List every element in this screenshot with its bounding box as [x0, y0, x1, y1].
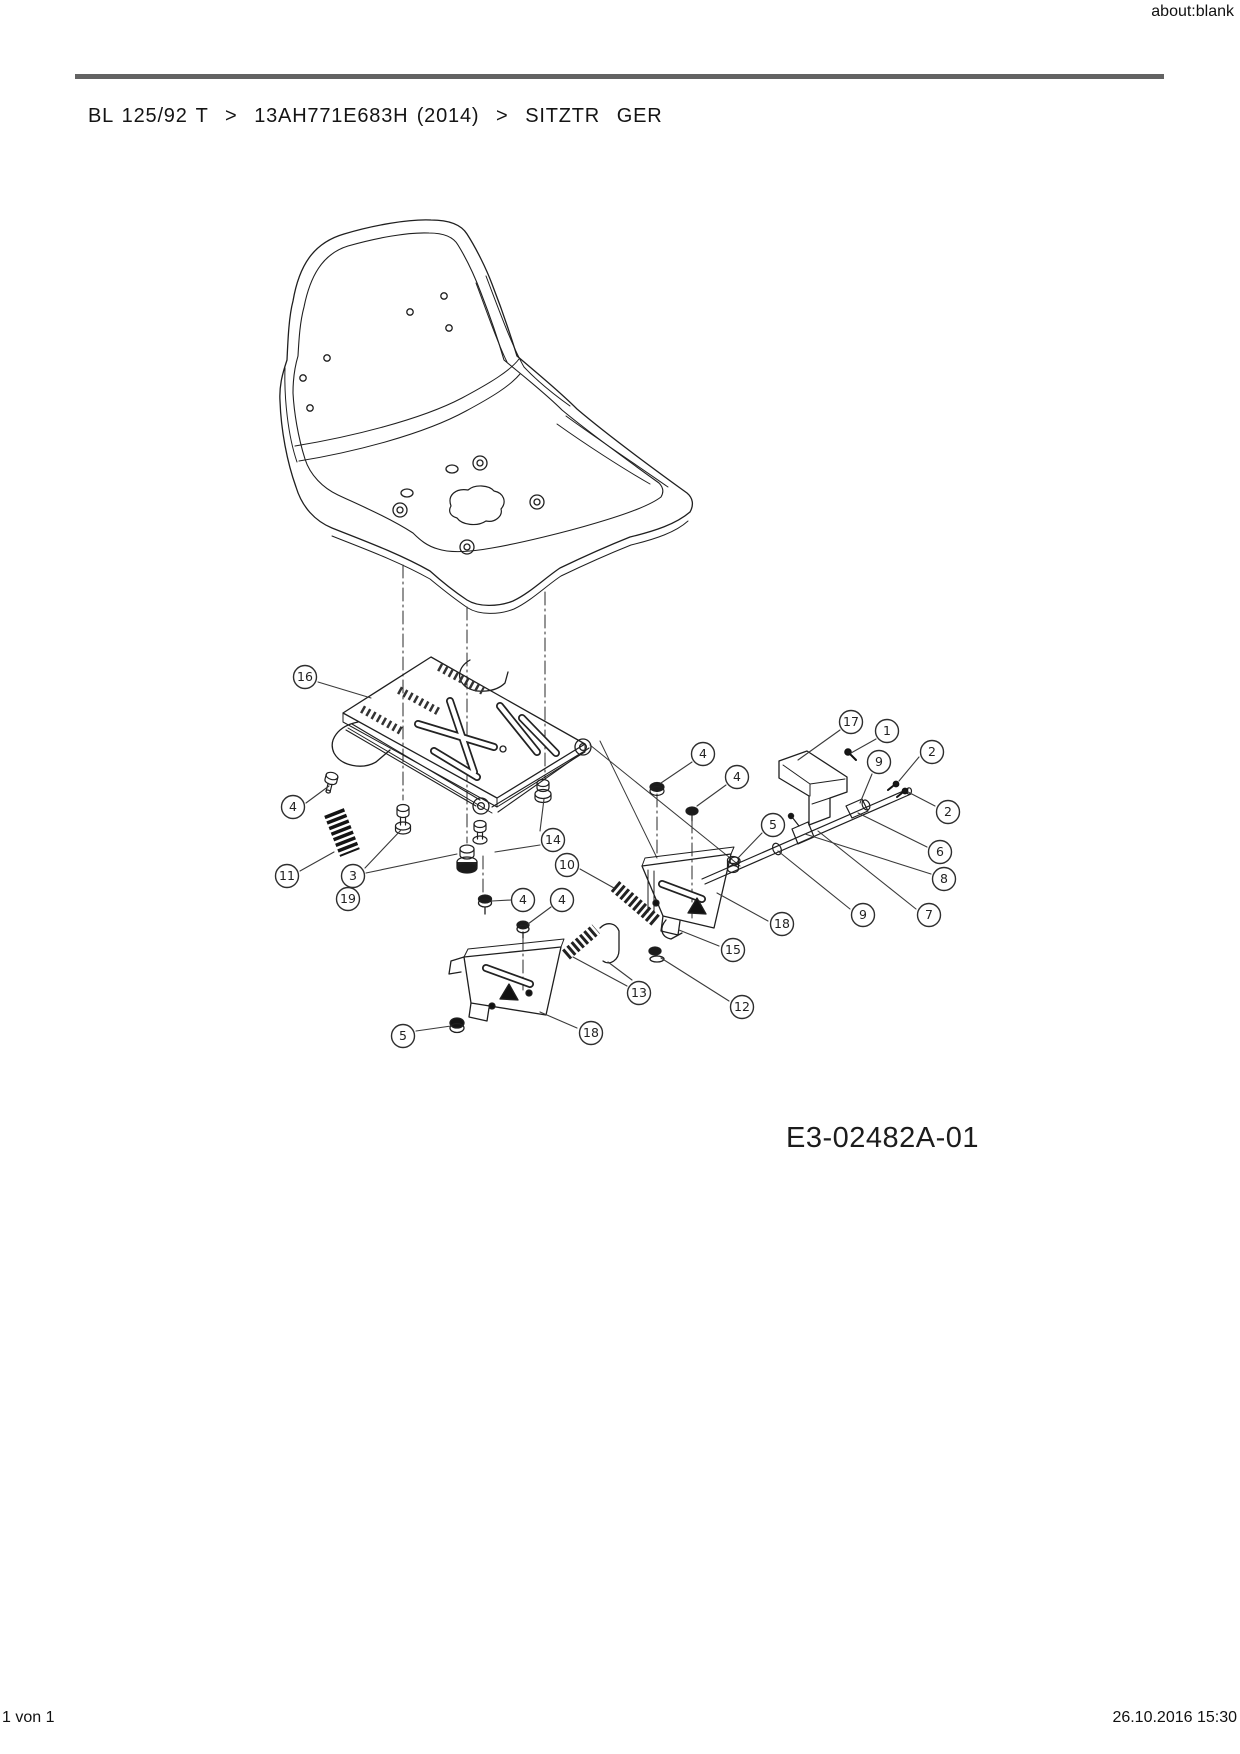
callout-number: 4 [289, 799, 297, 814]
spring-13-icon [566, 929, 596, 955]
bracket-lower-illustration [449, 895, 664, 1033]
footer-page-number: 1 von 1 [2, 1709, 54, 1727]
footer-timestamp: 26.10.2016 15:30 [1112, 1709, 1237, 1727]
callout-16: 16 [294, 666, 372, 699]
callout-layer: 16411319141044171292689718151312185544 [276, 666, 960, 1048]
callout-4: 4 [492, 889, 535, 912]
callout-4: 4 [697, 766, 749, 807]
callout-4: 4 [528, 889, 574, 925]
callout-number: 7 [925, 907, 933, 922]
screw-icon [845, 749, 851, 755]
rod-block-icon [846, 799, 871, 818]
callout-number: 15 [725, 942, 741, 957]
callout-number: 1 [883, 723, 891, 738]
callout-number: 5 [769, 817, 777, 832]
callout-15: 15 [679, 930, 745, 962]
callout-9: 9 [860, 751, 891, 804]
callout-number: 8 [940, 871, 948, 886]
shoulder-bolt-icon [396, 805, 411, 835]
callout-number: 17 [843, 714, 859, 729]
callout-4: 4 [282, 786, 330, 819]
mounting-plate-illustration [332, 657, 591, 814]
callout-number: 16 [297, 669, 313, 684]
callout-2: 2 [908, 792, 960, 824]
callout-number: 11 [279, 868, 295, 883]
callout-7: 7 [818, 831, 941, 927]
seat-grommets [393, 456, 544, 554]
callout-2: 2 [899, 741, 944, 782]
construction-lines [590, 741, 740, 866]
callout-number: 19 [340, 891, 356, 906]
seat-shell-illustration [280, 220, 693, 613]
callout-number: 5 [399, 1028, 407, 1043]
flanged-bolt-icon [457, 845, 477, 873]
callout-6: 6 [858, 813, 952, 864]
callout-number: 12 [734, 999, 750, 1014]
callout-number: 4 [699, 746, 707, 761]
callout-number: 18 [583, 1025, 599, 1040]
diagram-code-label: E3-02482A-01 [786, 1122, 979, 1155]
callout-10: 10 [556, 854, 615, 889]
screw-icon [893, 781, 899, 787]
callout-number: 2 [944, 804, 952, 819]
callout-12: 12 [661, 958, 754, 1019]
callout-number: 3 [349, 868, 357, 883]
callout-number: 4 [733, 769, 741, 784]
callout-19: 19 [337, 888, 360, 911]
callout-3: 3 [342, 830, 458, 888]
callout-number: 14 [545, 832, 561, 847]
callout-number: 13 [631, 985, 647, 1000]
j-bolt-icon [600, 924, 619, 963]
step-bolt-icon [535, 780, 551, 803]
callout-4: 4 [661, 743, 715, 784]
callout-number: 2 [928, 744, 936, 759]
printed-page: about:blank BL 125/92 T > 13AH771E683H (… [0, 0, 1240, 1754]
screw-icon [902, 788, 908, 794]
callout-number: 10 [559, 857, 575, 872]
spring-10-icon [615, 886, 656, 921]
callout-11: 11 [276, 852, 335, 888]
cap-nut-icon [450, 1018, 464, 1033]
callout-5: 5 [392, 1025, 452, 1048]
spring-11-icon [334, 812, 350, 853]
callout-5: 5 [738, 814, 785, 859]
exploded-parts-diagram: 16411319141044171292689718151312185544 [0, 0, 1240, 1754]
step-bolt-icon [473, 821, 487, 845]
callout-number: 4 [558, 892, 566, 907]
callout-13: 13 [573, 957, 651, 1005]
bolt-icon [322, 771, 339, 794]
callout-number: 9 [875, 754, 883, 769]
flange-nut-icon [649, 947, 664, 962]
callout-9: 9 [778, 851, 875, 927]
callout-number: 18 [774, 916, 790, 931]
callout-number: 9 [859, 907, 867, 922]
callout-18: 18 [717, 893, 794, 936]
callout-18: 18 [540, 1012, 603, 1045]
callout-number: 4 [519, 892, 527, 907]
bracket-right-illustration [615, 847, 740, 939]
callout-number: 6 [936, 844, 944, 859]
